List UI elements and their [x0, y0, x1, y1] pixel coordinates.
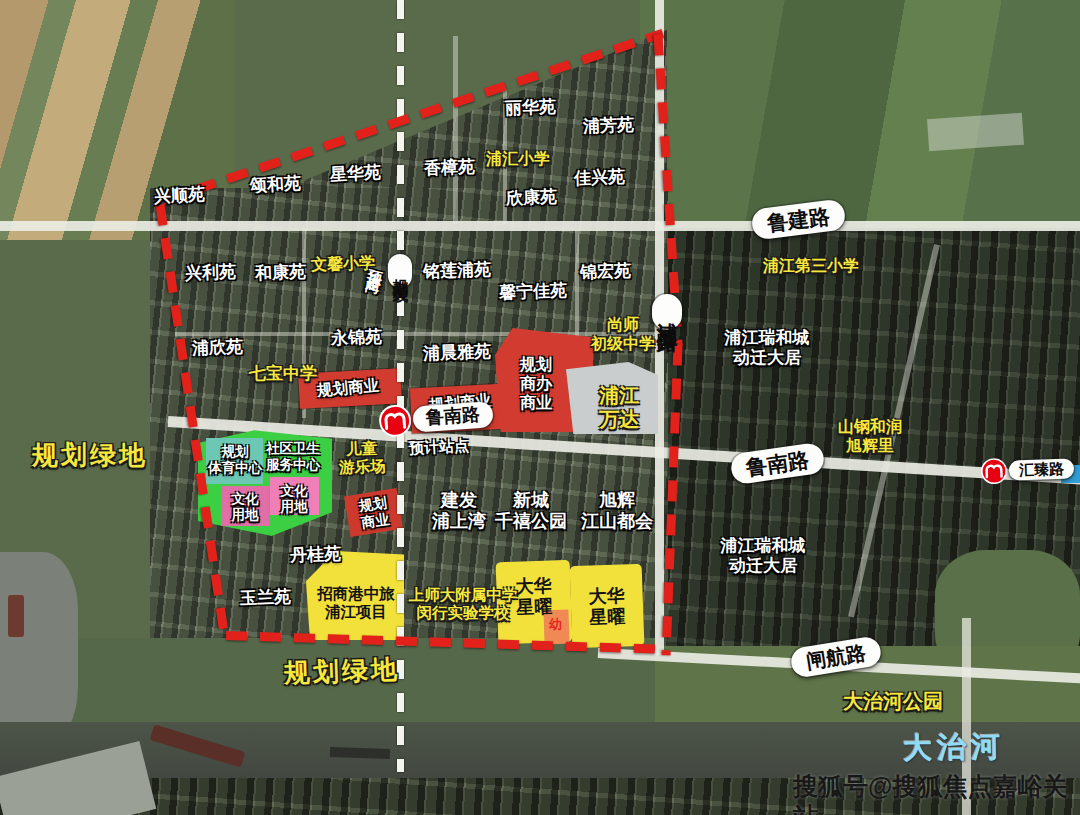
- school-pujiang-third: 浦江第三小学: [763, 257, 859, 276]
- project-dahua-a: 大华 星曜: [504, 575, 563, 619]
- estate-pufang: 浦芳苑: [583, 115, 635, 137]
- place-ruihecheng-south: 浦江瑞和城 动迁大居: [710, 536, 816, 576]
- estate-jiaxing: 佳兴苑: [574, 167, 626, 189]
- project-wanda: 浦江 万达: [586, 384, 652, 431]
- place-dazhihe-park: 大治河公园: [843, 690, 943, 714]
- zone-label-commercial-office: 规划 商办 商业: [514, 356, 558, 413]
- estate-xinningjia: 馨宁佳苑: [499, 281, 568, 303]
- estate-songhe: 颂和苑: [250, 174, 302, 197]
- zone-label-children-playground: 儿童 游乐场: [331, 439, 392, 478]
- planned-line-pill: 规划奉贤线: [388, 254, 412, 288]
- project-zhaoshang: 招商港中旅 浦江项目: [312, 585, 400, 622]
- river-left: [0, 552, 78, 744]
- estate-yulan: 玉兰苑: [240, 587, 292, 609]
- project-shangang: 山钢和润 旭辉里: [828, 418, 912, 456]
- metro-station-huizhen: 汇臻路: [981, 455, 1075, 484]
- estate-minglianpu: 铭莲浦苑: [423, 260, 492, 282]
- estate-xingli: 兴利苑: [185, 262, 237, 284]
- estate-xinghua: 星华苑: [330, 163, 382, 186]
- zone-label-green-left: 规划绿地: [32, 440, 148, 471]
- label-expected-station: 预计站点: [409, 436, 470, 457]
- metro-logo-icon: [981, 458, 1008, 485]
- road-pill-puxing: 浦星公路: [652, 294, 682, 330]
- estate-xinkang: 欣康苑: [506, 187, 558, 209]
- estate-hekang: 和康苑: [255, 262, 307, 284]
- satellite-planning-map: 兴顺苑 颂和苑 星华苑 香樟苑 丽华苑 浦芳苑 佳兴苑 欣康苑 兴利苑 和康苑 …: [0, 0, 1080, 815]
- project-dahua-b: 大华 星曜: [577, 585, 636, 629]
- zone-label-green-bottom: 规划绿地: [284, 654, 401, 689]
- barge: [330, 747, 390, 759]
- estate-jinhong: 锦宏苑: [580, 261, 632, 283]
- project-xincheng: 新城 千禧公园: [488, 490, 574, 532]
- estate-lihua: 丽华苑: [505, 97, 557, 119]
- project-jianfa: 建发 浦上湾: [422, 490, 496, 532]
- boat-1: [8, 595, 24, 637]
- zone-label-culture-a: 文化 用地: [227, 491, 263, 523]
- zone-label-commercial-small: 规划 商业: [351, 493, 397, 532]
- zone-label-culture-b: 文化 用地: [276, 483, 312, 515]
- zone-label-sports: 规划 体育中心: [207, 444, 263, 476]
- watermark: 搜狐号@搜狐焦点嘉峪关站: [793, 772, 1080, 815]
- greenhouse-patch: [927, 113, 1024, 152]
- project-xuhui: 旭辉 江山都会: [574, 490, 660, 532]
- station-pill-lunan: 鲁南路: [412, 401, 494, 432]
- station-pill-huizhen: 汇臻路: [1009, 458, 1075, 481]
- street-1: [453, 36, 458, 224]
- place-dazhihe-river: 大治河: [903, 729, 1006, 765]
- estate-puchenya: 浦晨雅苑: [423, 342, 492, 364]
- estate-puxin: 浦欣苑: [192, 337, 244, 359]
- estate-yongjin: 永锦苑: [331, 327, 383, 349]
- school-qibao: 七宝中学: [249, 364, 317, 384]
- school-puhui: 浦汇小学: [486, 150, 550, 169]
- zone-label-health: 社区卫生 服务中心: [262, 441, 324, 473]
- place-ruihecheng-north: 浦江瑞和城 动迁大居: [714, 328, 820, 368]
- metro-logo-icon: [378, 404, 412, 438]
- zone-label-kindergarten: 幼: [549, 617, 562, 632]
- estate-xingshun: 兴顺苑: [154, 185, 206, 208]
- school-wenxin: 文馨小学: [311, 254, 376, 275]
- estate-dangui: 丹桂苑: [290, 544, 342, 566]
- estate-xiangzhang: 香樟苑: [424, 157, 476, 179]
